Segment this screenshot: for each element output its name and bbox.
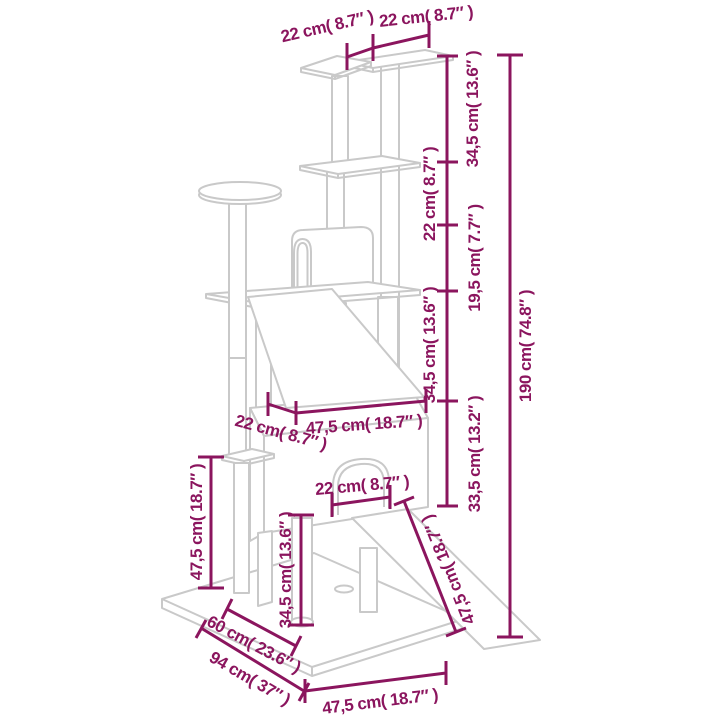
third-platform [300,156,420,174]
dimension-height-segment-4: 34,5 cm( 13.6″ ) [420,287,458,403]
height-segment-2-line [437,162,458,225]
height-segment-4-label: 34,5 cm( 13.6″ ) [420,287,439,403]
diagram-canvas: 22 cm( 8.7″ ) 22 cm( 8.7″ ) 34,5 cm( 13.… [0,0,720,720]
front-post-height-label: 34,5 cm( 13.6″ ) [276,512,295,628]
height-segment-3-line [437,225,458,291]
height-segment-1-label: 34,5 cm( 13.6″ ) [463,51,482,167]
dimension-diagram-svg: 22 cm( 8.7″ ) 22 cm( 8.7″ ) 34,5 cm( 13.… [0,0,720,720]
height-segment-1-line [437,56,458,162]
post-left-lower [234,463,249,593]
dimension-height-segment-2: 22 cm( 8.7″ ) [420,147,458,241]
dimension-height-segment-5: 33,5 cm( 13.2″ ) [437,396,484,512]
round-platform [199,182,281,200]
height-segment-4-line [437,291,458,401]
base-front-width-label: 47,5 cm( 18.7″ ) [321,685,439,718]
left-post-height-label: 47,5 cm( 18.7″ ) [187,464,206,580]
dimension-left-post-height: 47,5 cm( 18.7″ ) [187,457,224,588]
cat-tree-line-art [162,50,540,676]
house-leg-panel [258,531,272,606]
height-segment-2-label: 22 cm( 8.7″ ) [420,147,439,241]
dimension-base-front-width: 47,5 cm( 18.7″ ) [305,661,446,718]
height-segment-5-line [437,401,458,506]
post-cap-on-base [335,586,353,593]
dimension-height-segment-3: 19,5 cm( 7.7″ ) [437,204,484,311]
dimension-height-segment-1: 34,5 cm( 13.6″ ) [437,51,482,167]
top-platform-right-width-label: 22 cm( 8.7″ ) [378,2,474,31]
top-platform-left-width-label: 22 cm( 8.7″ ) [279,7,375,47]
height-segment-3-label: 19,5 cm( 7.7″ ) [465,204,484,311]
dimension-total-height: 190 cm( 74.8″ ) [497,55,535,637]
total-height-label: 190 cm( 74.8″ ) [516,290,535,402]
post-upper-left [332,76,348,166]
post-under-house [360,548,377,612]
height-segment-5-label: 33,5 cm( 13.2″ ) [465,396,484,512]
